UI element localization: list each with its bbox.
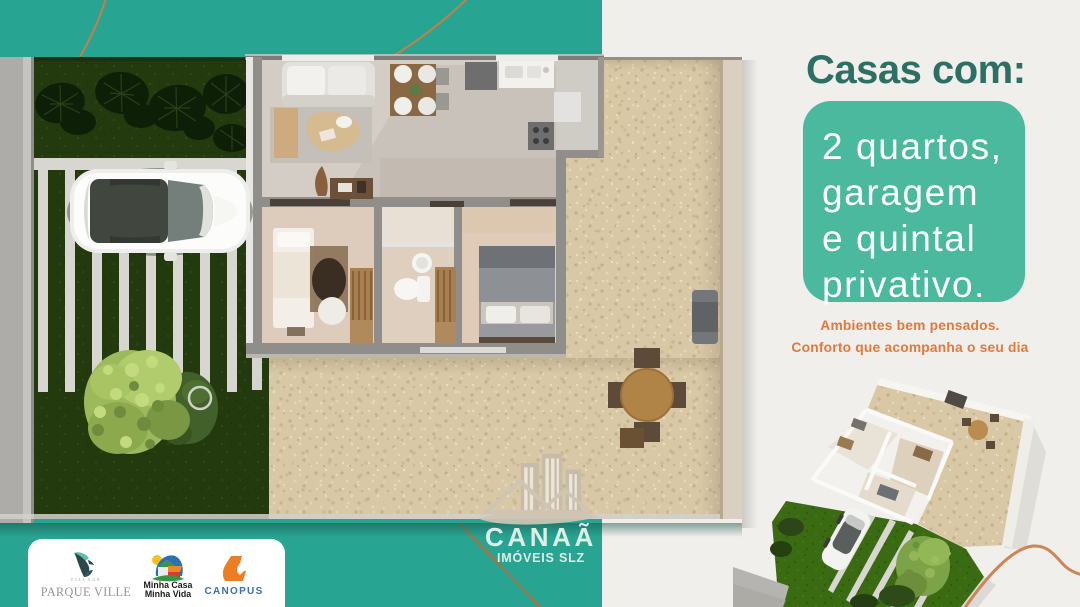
svg-text:Ambientes bem pensados.: Ambientes bem pensados. [820,318,999,333]
svg-text:garagem: garagem [822,172,979,213]
svg-text:CANOPUS: CANOPUS [204,586,263,597]
svg-text:PARQUE VILLE: PARQUE VILLE [41,585,131,599]
svg-text:e quintal: e quintal [822,218,976,259]
svg-text:CANAÃ: CANAÃ [485,522,597,552]
svg-text:privativo.: privativo. [822,264,986,305]
svg-text:Conforto que acompanha o seu d: Conforto que acompanha o seu dia [791,340,1028,355]
svg-text:VILLAGE: VILLAGE [70,577,101,582]
svg-text:Casas com:: Casas com: [806,48,1026,92]
svg-text:Minha Vida: Minha Vida [145,589,191,599]
svg-text:IMÓVEIS SLZ: IMÓVEIS SLZ [497,550,585,565]
svg-text:2 quartos,: 2 quartos, [822,126,1003,167]
